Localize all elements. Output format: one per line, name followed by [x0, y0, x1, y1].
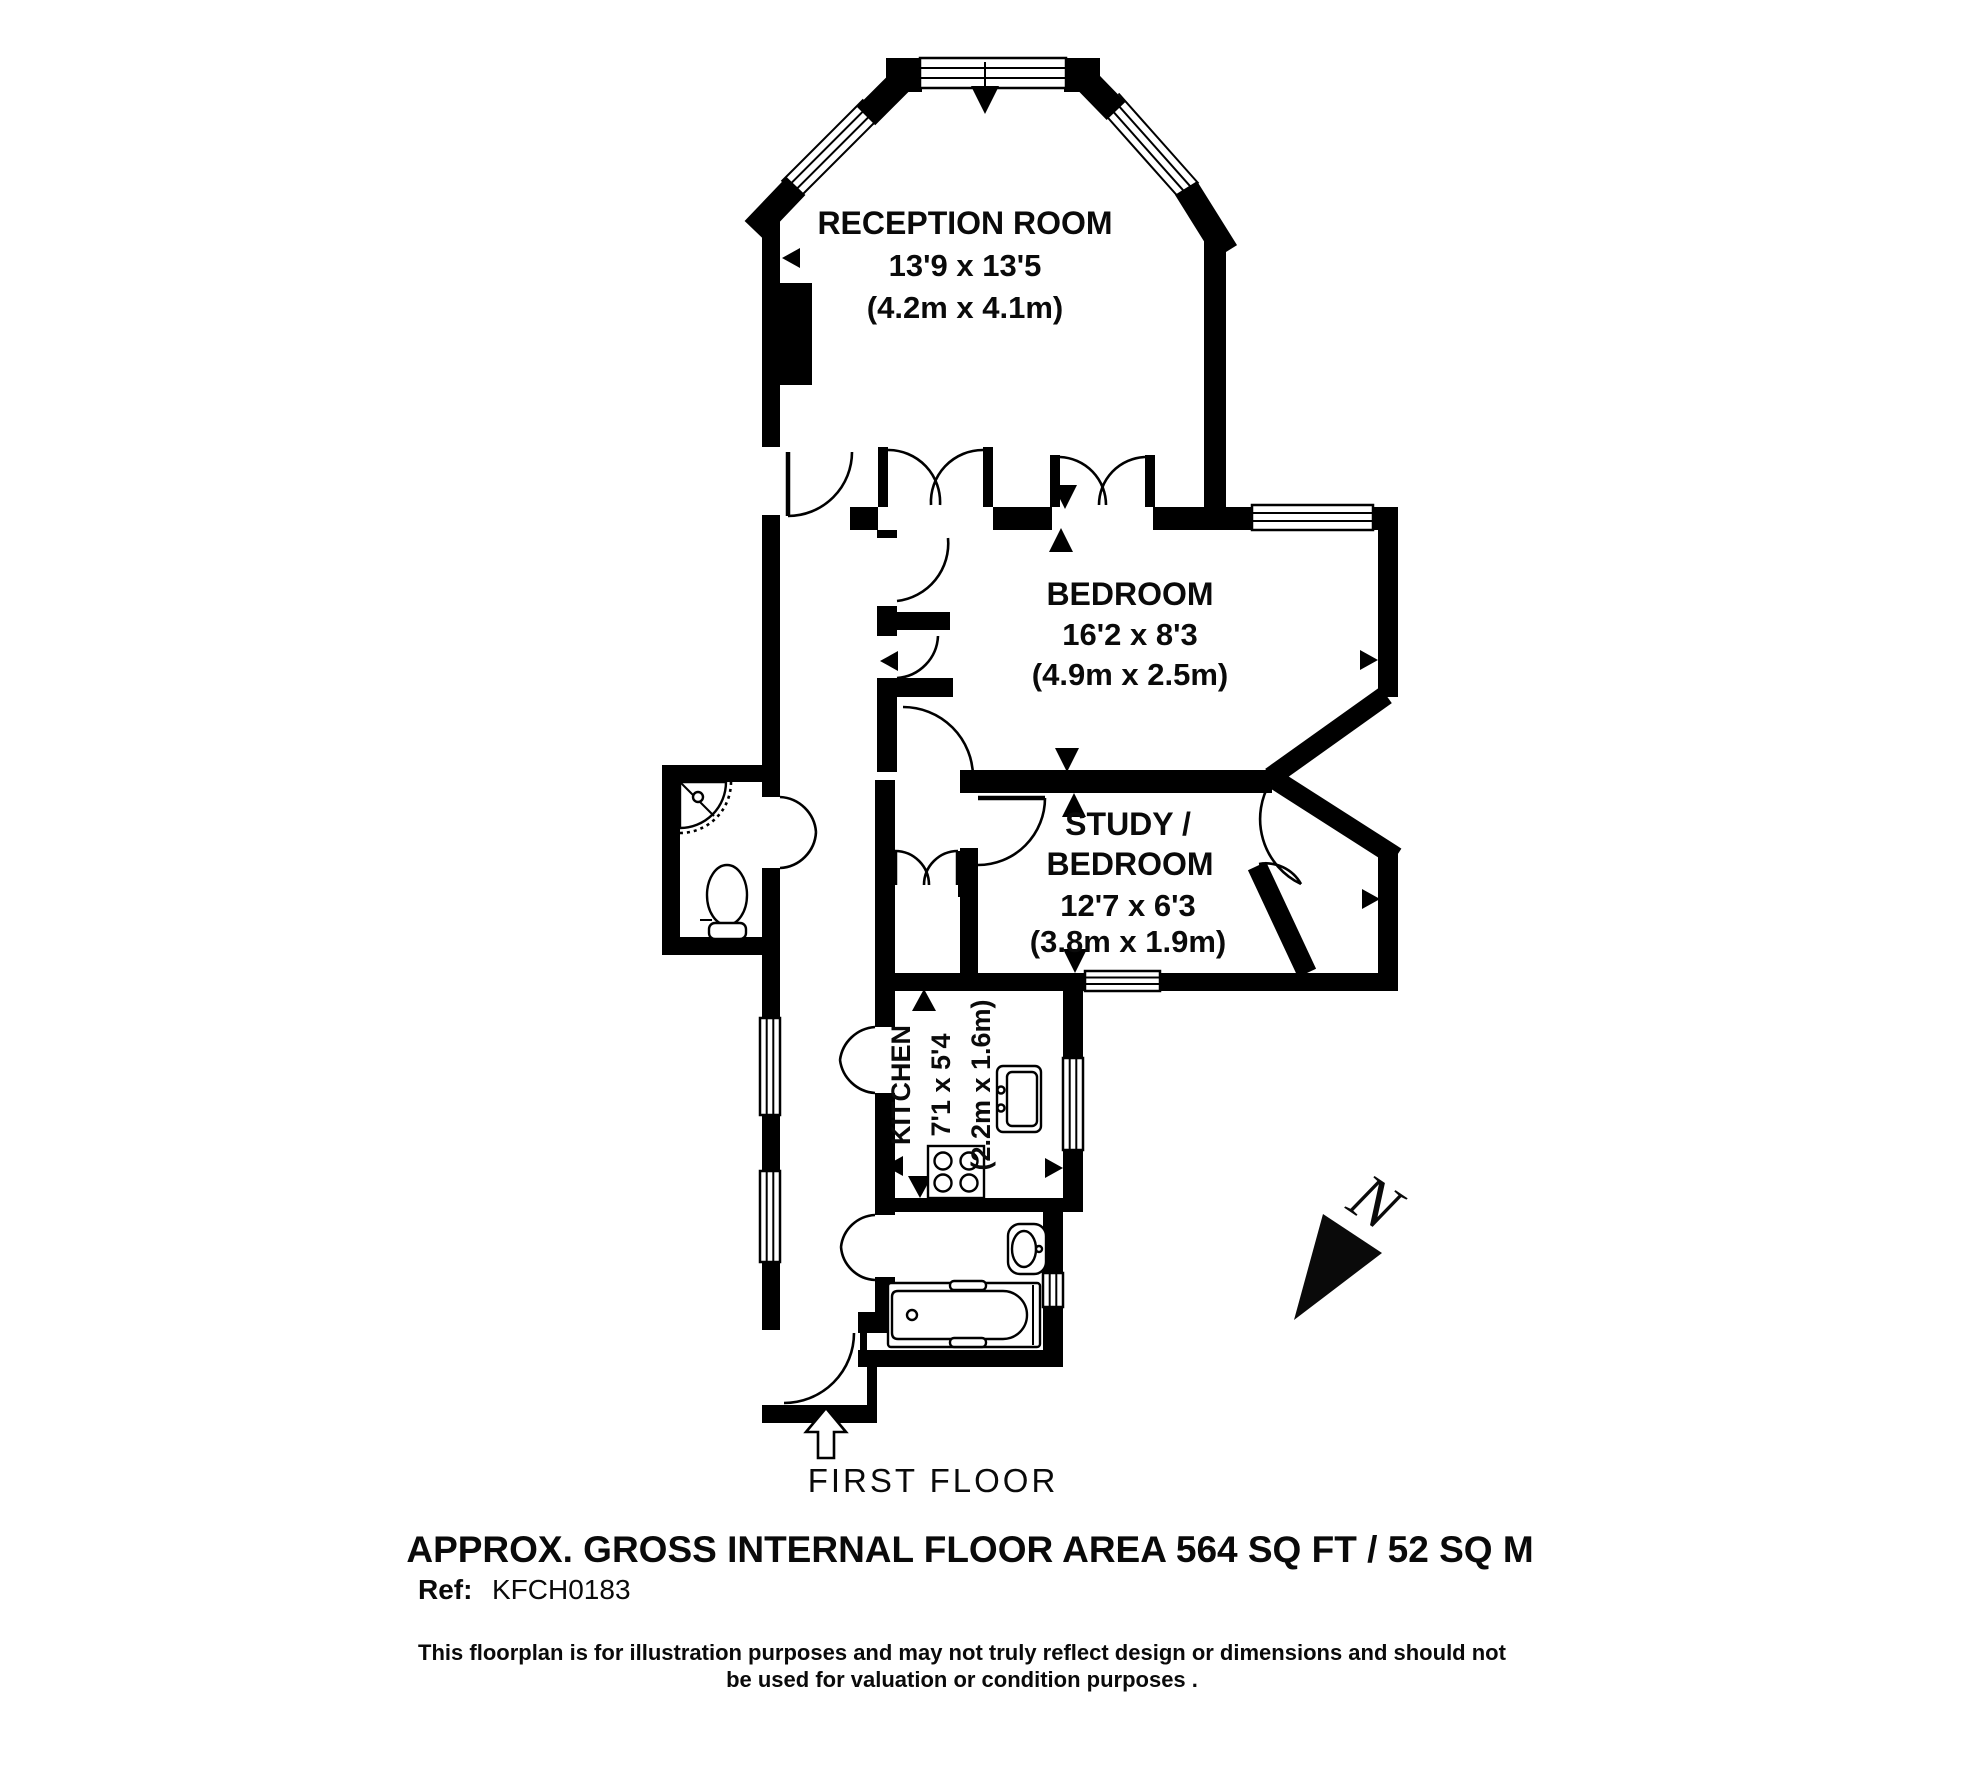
floorplan: RECEPTION ROOM 13'9 x 13'5 (4.2m x 4.1m)…	[0, 0, 1962, 1768]
kitchen-name: KITCHEN	[886, 1025, 916, 1145]
kitchen-sink	[997, 1066, 1041, 1132]
reception-room-label: RECEPTION ROOM 13'9 x 13'5 (4.2m x 4.1m)	[817, 205, 1112, 325]
north-arrow: N	[1294, 1159, 1417, 1320]
area-label: APPROX. GROSS INTERNAL FLOOR AREA 564 SQ…	[406, 1529, 1533, 1570]
bath	[888, 1281, 1040, 1347]
bedroom-dims-metric: (4.9m x 2.5m)	[1032, 657, 1228, 692]
disclaimer-line1: This floorplan is for illustration purpo…	[418, 1640, 1507, 1665]
bedroom-dims-imperial: 16'2 x 8'3	[1062, 617, 1197, 652]
reception-room-name: RECEPTION ROOM	[817, 205, 1112, 241]
bathroom-basin	[1008, 1224, 1046, 1274]
study-dims-imperial: 12'7 x 6'3	[1060, 888, 1195, 923]
corner-basin	[680, 782, 731, 833]
kitchen-dims-metric: (2.2m x 1.6m)	[966, 999, 996, 1170]
study-name-line1: STUDY /	[1065, 806, 1191, 842]
study-dims-metric: (3.8m x 1.9m)	[1030, 924, 1226, 959]
reception-room-dims-metric: (4.2m x 4.1m)	[867, 290, 1063, 325]
toilet	[700, 865, 747, 939]
floor-label: FIRST FLOOR	[808, 1462, 1059, 1499]
bedroom-name: BEDROOM	[1046, 576, 1213, 612]
reception-room-dims-imperial: 13'9 x 13'5	[889, 248, 1042, 283]
study-bedroom-label: STUDY / BEDROOM 12'7 x 6'3 (3.8m x 1.9m)	[1030, 806, 1226, 959]
study-name-line2: BEDROOM	[1046, 846, 1213, 882]
bedroom-label: BEDROOM 16'2 x 8'3 (4.9m x 2.5m)	[1032, 576, 1228, 692]
disclaimer-line2: be used for valuation or condition purpo…	[726, 1667, 1198, 1692]
footer: APPROX. GROSS INTERNAL FLOOR AREA 564 SQ…	[406, 1529, 1533, 1692]
ref-value: KFCH0183	[492, 1574, 631, 1605]
kitchen-dims-imperial: 7'1 x 5'4	[926, 1034, 956, 1137]
ref-label: Ref:	[418, 1574, 472, 1605]
